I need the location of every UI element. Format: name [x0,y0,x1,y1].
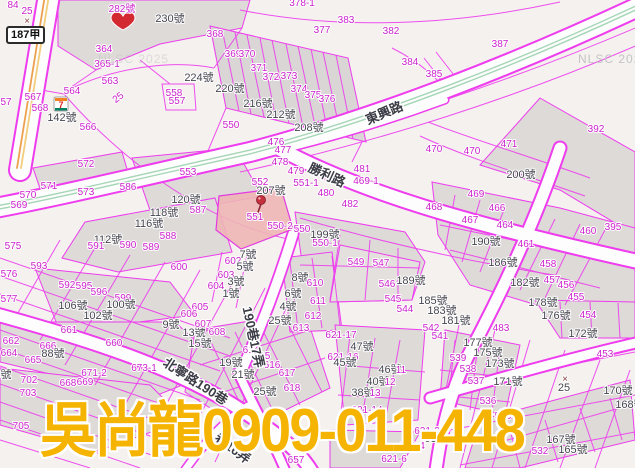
parcel-number-label: 588 [160,231,177,242]
parcel-number-label: 551 [247,212,264,223]
parcel-number-label: 592 [59,280,76,291]
parcel-number-label: 84 [7,0,19,11]
svg-text:7: 7 [58,100,63,110]
parcel-number-label: 664 [1,348,18,359]
parcel-number-label: 481 [354,164,371,175]
parcel-number-label: 469-1 [353,176,379,187]
house-number-label: 224號 [184,71,213,84]
house-number-label: 25號 [268,314,291,327]
parcel-number-label: 546 [379,279,396,290]
house-number-label: 3號 [227,275,244,288]
house-number-label: 176號 [541,309,570,322]
house-number-label: 208號 [294,121,323,134]
house-number-label: 173號 [485,357,514,370]
parcel-number-label: 483 [493,323,510,334]
house-number-label: 172號 [568,327,597,340]
house-number-label: 186號 [488,256,517,269]
parcel-number-label: 702 [21,375,38,386]
house-number-label: 178號 [528,296,557,309]
parcel-number-label: 460 [580,226,597,237]
parcel-number-label: 590 [120,240,137,251]
parcel-number-label: 587 [190,205,207,216]
house-number-label: 5號 [236,260,253,273]
parcel-number-label: 577 [1,294,18,305]
parcel-number-label: 573 [78,187,95,198]
parcel-number-label: 550 [223,120,240,131]
parcel-number-label: 564 [64,86,81,97]
parcel-number-label: 575 [5,241,22,252]
parcel-number-label: 392 [588,124,605,135]
house-number-label: 6號 [0,368,12,381]
parcel-number-label: 538 [460,364,477,375]
parcel-number-label: 385 [426,69,443,80]
parcel-number-label: 57 [0,97,12,108]
parcel-number-label: 569 [11,200,28,211]
parcel-number-label: 589 [143,242,160,253]
house-number-label: 21號 [231,368,254,381]
house-number-label: 25 [558,382,570,394]
house-number-label: 102號 [83,309,112,322]
parcel-number-label: 458 [540,259,557,270]
house-number-label: 6號 [284,287,301,300]
house-number-label: 190號 [471,235,500,248]
road-number-sign: 187甲 [6,26,45,44]
parcel-number-label: 568 [32,103,49,114]
parcel-number-label: 591 [88,241,105,252]
parcel-number-label: 550-1 [312,238,338,249]
parcel-number-label: 532 [532,446,549,457]
house-number-label: 19號 [219,356,242,369]
parcel-number-label: 563 [102,76,119,87]
house-number-label: 88號 [41,347,64,360]
parcel-number-label: 368 [207,29,224,40]
parcel-number-label: 610 [307,278,324,289]
house-number-label: 220號 [215,82,244,95]
parcel-number-label: 456 [558,280,575,291]
parcel-number-label: 466 [489,203,506,214]
house-number-label: 168號 [615,398,635,411]
parcel-number-label: 470 [464,146,481,157]
house-number-label: 116號 [135,217,164,230]
parcel-number-label: 613 [293,323,310,334]
house-number-label: 207號 [256,184,285,197]
realtor-watermark: 吳尚龍0909-011-448 [40,382,524,468]
parcel-number-label: 549 [348,257,365,268]
parcel-number-label: 596 [91,287,108,298]
parcel-number-label: 703 [20,388,37,399]
house-number-label: 7號 [239,248,256,261]
parcel-number-label: 387 [492,39,509,50]
parcel-number-label: 454 [580,310,597,321]
parcel-number-label: 373 [281,71,298,82]
parcel-number-label: 608 [209,327,226,338]
parcel-number-label: 382 [383,26,400,37]
parcel-number-label: 453 [597,349,614,360]
parcel-number-label: 461 [518,239,535,250]
house-number-label: 230號 [155,12,184,25]
house-number-label: 45號 [333,356,356,369]
house-number-label: 189號 [396,274,425,287]
parcel-number-label: 468 [426,202,443,213]
parcel-number-label: 478 [272,157,289,168]
house-number-label: 9號 [162,318,179,331]
house-number-label: 47號 [350,340,373,353]
parcel-number-label: 377 [314,25,331,36]
seven-eleven-icon[interactable]: 7 [54,97,68,111]
house-number-label: 1號 [222,287,239,300]
parcel-number-label: 553 [180,167,197,178]
parcel-number-label: 376 [319,94,336,105]
parcel-number-label: 469 [468,189,485,200]
parcel-number-label: 705 [13,421,30,432]
parcel-number-label: 617 [279,368,296,379]
parcel-number-label: 547 [373,258,390,269]
parcel-number-label: 471 [501,139,518,150]
parcel-number-label: 541 [432,331,449,342]
parcel-number-label: 600 [171,262,188,273]
parcel-number-label: 480 [318,188,335,199]
parcel-number-label: 384 [402,57,419,68]
parcel-number-label: 550-2 [267,221,293,232]
nlsc-watermark: NLSC 2025 [578,52,635,66]
parcel-number-label: 660 [106,338,123,349]
parcel-number-label: 544 [397,304,414,315]
house-number-label: 181號 [441,314,470,327]
house-number-label: 212號 [266,108,295,121]
parcel-number-label: 482 [342,199,359,210]
house-number-label: 165號 [558,443,587,456]
parcel-number-label: 539 [450,353,467,364]
parcel-number-label: 378-1 [289,0,315,9]
parcel-number-label: 567 [25,92,42,103]
house-number-label: 4號 [279,300,296,313]
nlsc-watermark-faint: NLSC 2025 [98,52,169,66]
house-number-label: 182號 [510,276,539,289]
parcel-number-label: 477 [275,145,292,156]
parcel-number-label: 395 [605,222,622,233]
parcel-number-label: 611 [310,296,326,307]
parcel-number-label: 621-17 [325,330,357,341]
house-number-label: 142號 [47,111,76,124]
parcel-number-label: 467 [462,215,479,226]
parcel-number-label: 571 [41,181,58,192]
parcel-number-label: 479 [288,166,305,177]
parcel-number-label: 455 [568,292,585,303]
parcel-number-label: 572 [78,159,95,170]
parcel-number-label: 464 [497,220,514,231]
house-number-label: 120號 [171,193,200,206]
parcel-number-label: 665 [25,355,42,366]
house-number-label: 170號 [603,384,632,397]
parcel-number-label: 550 [294,224,311,235]
parcel-number-label: 282號 [109,2,136,15]
parcel-number-label: 661 [61,325,78,336]
parcel-number-label: 576 [1,269,18,280]
parcel-number-label: 662 [3,336,20,347]
parcel-number-label: 470 [426,144,443,155]
parcel-number-label: 557 [169,96,186,107]
parcel-number-label: 586 [120,182,137,193]
house-number-label: 200號 [506,168,535,181]
parcel-number-label: 566 [80,122,97,133]
parcel-number-label: 612 [305,311,322,322]
parcel-number-label: 551-1 [293,178,319,189]
parcel-number-label: 383 [338,15,355,26]
parcel-number-label: 370 [239,49,256,60]
parcel-number-label: 593 [31,261,48,272]
parcel-number-label: 11 [396,365,407,376]
map-viewport[interactable]: 7 8425×282號230號364365-156356456757568142… [0,0,635,468]
parcel-number-label: 673-1 [131,363,157,374]
house-number-label: 15號 [188,337,211,350]
parcel-number-label: 372 [263,72,280,83]
